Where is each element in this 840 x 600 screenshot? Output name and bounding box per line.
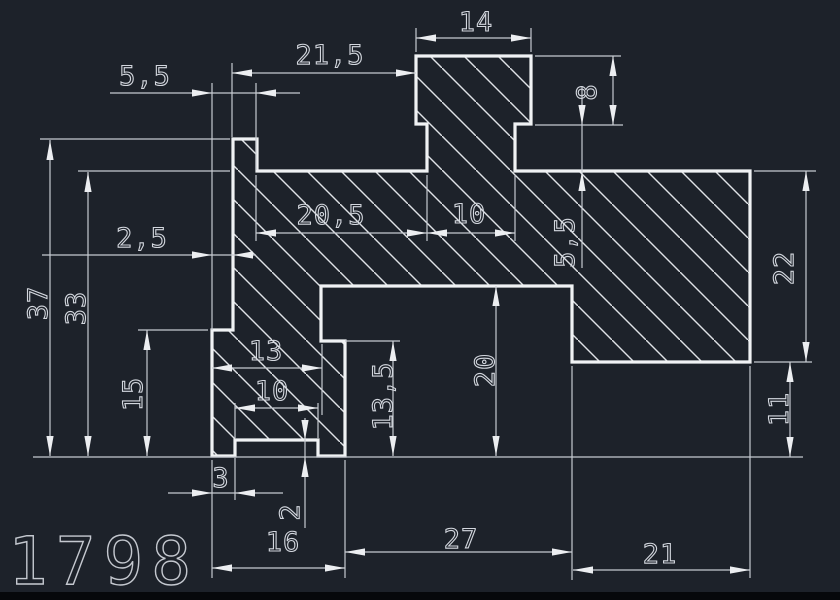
dim-label-top-offset: 21,5 xyxy=(295,40,364,71)
dim-label-web-height: 33 xyxy=(61,291,92,326)
dim-label-recess-depth: 2 xyxy=(275,503,306,520)
dim-label-tab-height: 8 xyxy=(572,83,603,100)
dim-label-right-block-width: 21 xyxy=(643,539,678,570)
dim-label-foot-step-left: 15 xyxy=(118,377,149,412)
dim-label-left-lip-offset: 5,5 xyxy=(119,61,171,92)
dim-label-stem-width: 10 xyxy=(452,199,487,230)
window-bottom-edge xyxy=(0,592,840,600)
dim-label-right-height: 22 xyxy=(769,251,800,286)
dim-label-shelf-width: 20,5 xyxy=(296,200,365,231)
drawing-sheet: 14 21,5 5,5 2,5 20,5 10 8 5,5 22 11 37 3… xyxy=(0,0,840,600)
dim-label-recess-width: 10 xyxy=(255,376,290,407)
drawing-number-stamp: 1798 xyxy=(8,523,199,600)
dim-label-total-height: 37 xyxy=(23,286,54,321)
dim-label-foot-width: 16 xyxy=(266,527,301,558)
dim-label-tower-width: 13 xyxy=(249,336,284,367)
dim-label-lip-left: 3 xyxy=(212,463,229,494)
dim-label-trench-depth: 20 xyxy=(470,353,501,388)
dim-label-wall-offset: 2,5 xyxy=(116,223,168,254)
dim-label-trench-width: 27 xyxy=(444,524,479,555)
dim-label-tab-width: 14 xyxy=(459,7,494,38)
dim-label-stem-height: 5,5 xyxy=(550,216,581,268)
dim-label-foot-step-right: 13,5 xyxy=(368,361,399,430)
dim-label-right-bottom: 11 xyxy=(764,392,795,427)
cad-drawing-canvas: 14 21,5 5,5 2,5 20,5 10 8 5,5 22 11 37 3… xyxy=(0,0,840,600)
